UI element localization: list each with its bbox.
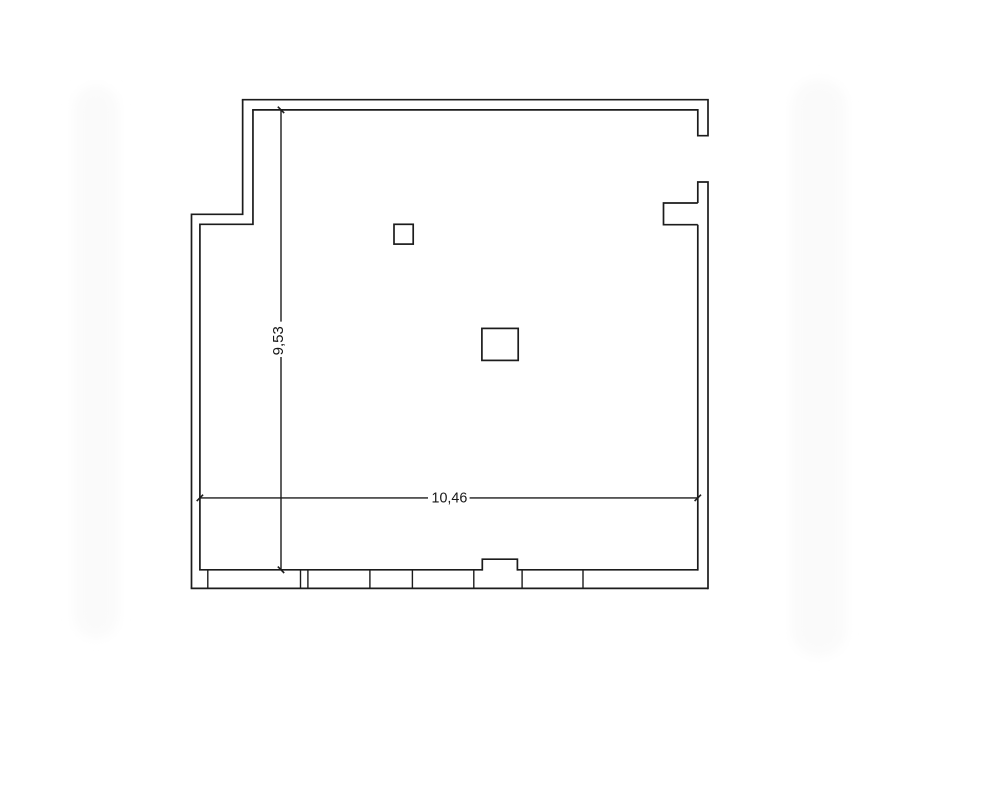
svg-text:9,53: 9,53	[270, 326, 287, 355]
svg-text:10,46: 10,46	[432, 491, 468, 507]
